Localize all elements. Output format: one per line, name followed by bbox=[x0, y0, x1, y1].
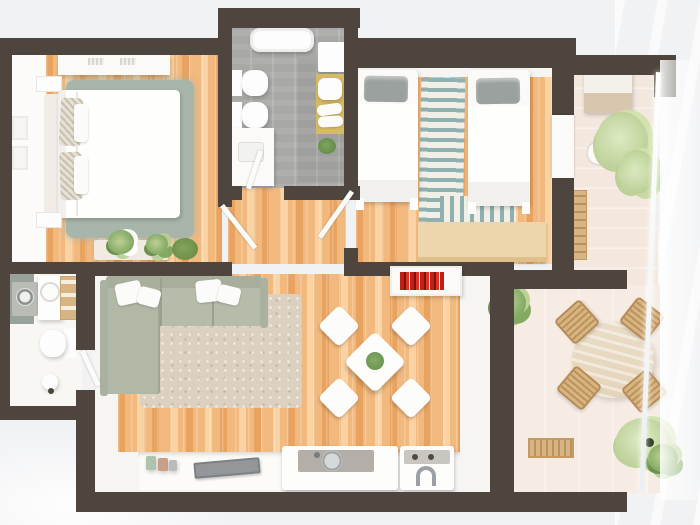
bedroom1-wall-frame-lower bbox=[12, 146, 28, 170]
stove-knob-1 bbox=[412, 454, 418, 460]
sink-faucet-dot bbox=[314, 452, 320, 458]
kitchen-canister-green bbox=[146, 456, 156, 470]
sink-basin bbox=[322, 451, 342, 471]
wall-bedroom1-left bbox=[0, 38, 12, 270]
console-plant-white-flowers bbox=[108, 230, 134, 254]
bed-right-foot-post-a bbox=[468, 202, 476, 214]
bedroom1-wardrobe bbox=[58, 55, 170, 75]
kitchen-canister-gray bbox=[169, 460, 177, 471]
dining-table-centerpiece bbox=[366, 352, 384, 370]
bathroom-stool bbox=[318, 78, 342, 100]
console-plant-green bbox=[146, 234, 168, 254]
bedroom2-dresser bbox=[418, 222, 546, 262]
wall-living-top-left bbox=[76, 262, 232, 276]
railing-outer-glow bbox=[660, 60, 700, 500]
bedroom1-wall-frame-upper bbox=[12, 116, 28, 140]
wall-bedroom2-left-upper bbox=[344, 55, 358, 188]
wall-living-right bbox=[490, 276, 514, 512]
wall-terrace-top bbox=[512, 270, 627, 289]
wall-bedroom2-top bbox=[344, 38, 576, 68]
bedroom1-floor-plant bbox=[172, 238, 198, 260]
bed-left-foot-post-b bbox=[410, 198, 418, 210]
bedroom1-nightstand-top bbox=[36, 76, 62, 92]
rolled-towel-2 bbox=[318, 115, 344, 127]
wall-living-bottom bbox=[76, 492, 627, 512]
balcony-bench bbox=[572, 190, 587, 260]
wc-round-basin bbox=[40, 282, 60, 302]
terrace-plant-dark-accent bbox=[645, 438, 654, 447]
wall-bedroom1-top bbox=[0, 38, 232, 55]
bidet-bowl bbox=[242, 102, 268, 128]
washing-machine-door bbox=[16, 288, 34, 306]
bookshelf-red-books bbox=[400, 272, 444, 290]
wardrobe-vent-right bbox=[120, 58, 136, 65]
wall-wc-top bbox=[0, 262, 84, 274]
wardrobe-vent-left bbox=[88, 58, 104, 65]
balcony-cabinet bbox=[584, 73, 632, 113]
toilet-bowl bbox=[242, 70, 268, 96]
floor-plan-stage bbox=[0, 0, 700, 525]
sofa-armrest-left bbox=[100, 280, 108, 396]
sofa-seam-1 bbox=[160, 278, 162, 326]
wall-living-left-upper bbox=[76, 262, 95, 350]
wall-bedroom1-right bbox=[218, 55, 232, 207]
bed-left-pillow bbox=[364, 76, 408, 103]
bidet-tank bbox=[232, 102, 242, 128]
wall-wc-bottom bbox=[0, 406, 84, 420]
door-bedroom2-to-balcony bbox=[552, 115, 574, 178]
stove-knob-2 bbox=[428, 454, 434, 460]
wall-bedroom2-right-lower bbox=[552, 178, 574, 272]
toilet-tank bbox=[232, 70, 242, 96]
wall-bathroom-top bbox=[220, 8, 360, 28]
wc-toilet-bowl bbox=[40, 330, 66, 357]
bed1-white-pillow-bottom bbox=[74, 156, 88, 194]
bathroom-corner-counter bbox=[318, 42, 346, 72]
terrace-bench bbox=[528, 438, 574, 458]
stove-panel bbox=[404, 450, 450, 464]
wall-wc-left bbox=[0, 262, 10, 420]
bathtub bbox=[250, 28, 314, 52]
bed1-white-pillow-top bbox=[74, 104, 88, 142]
bathroom-plant bbox=[318, 138, 336, 154]
bedroom1-nightstand-bottom bbox=[36, 212, 62, 228]
wc-fixture-dot bbox=[48, 388, 54, 394]
bed-right-foot-post-b bbox=[522, 202, 530, 214]
balcony-plant-foliage-2 bbox=[618, 150, 656, 194]
sofa-armrest-right bbox=[260, 278, 268, 328]
bed-right-pillow bbox=[476, 78, 520, 105]
kitchen-faucet-arch bbox=[416, 466, 436, 486]
kitchen-canister-copper bbox=[158, 458, 168, 471]
